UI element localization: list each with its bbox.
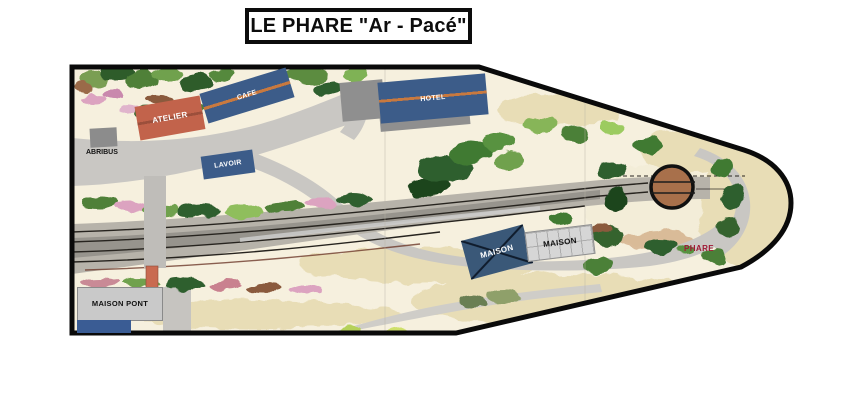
map-artwork [0, 0, 854, 415]
building-abribus [90, 127, 118, 147]
building-maison-pont: MAISON PONT [77, 287, 163, 321]
building-maison-pont-label: MAISON PONT [92, 300, 148, 308]
building-cafe-label: CAFE [236, 89, 257, 102]
building-maison-gray-label: MAISON [543, 237, 578, 249]
building-maison-pont-annex [77, 320, 131, 333]
building-atelier-label: ATELIER [152, 111, 189, 125]
title-box: LE PHARE "Ar - Pacé" [245, 8, 472, 44]
turntable [650, 166, 695, 208]
layout-plan: LE PHARE "Ar - Pacé" ATELIER CAFE HOTEL … [0, 0, 854, 415]
building-lavoir-label: LAVOIR [214, 159, 242, 170]
building-abribus-label: ABRIBUS [86, 149, 118, 156]
phare-label: PHARE [684, 245, 714, 253]
page-title: LE PHARE "Ar - Pacé" [250, 15, 466, 38]
building-hotel-label: HOTEL [420, 94, 446, 103]
building-maison-blue-label: MAISON [480, 244, 515, 260]
